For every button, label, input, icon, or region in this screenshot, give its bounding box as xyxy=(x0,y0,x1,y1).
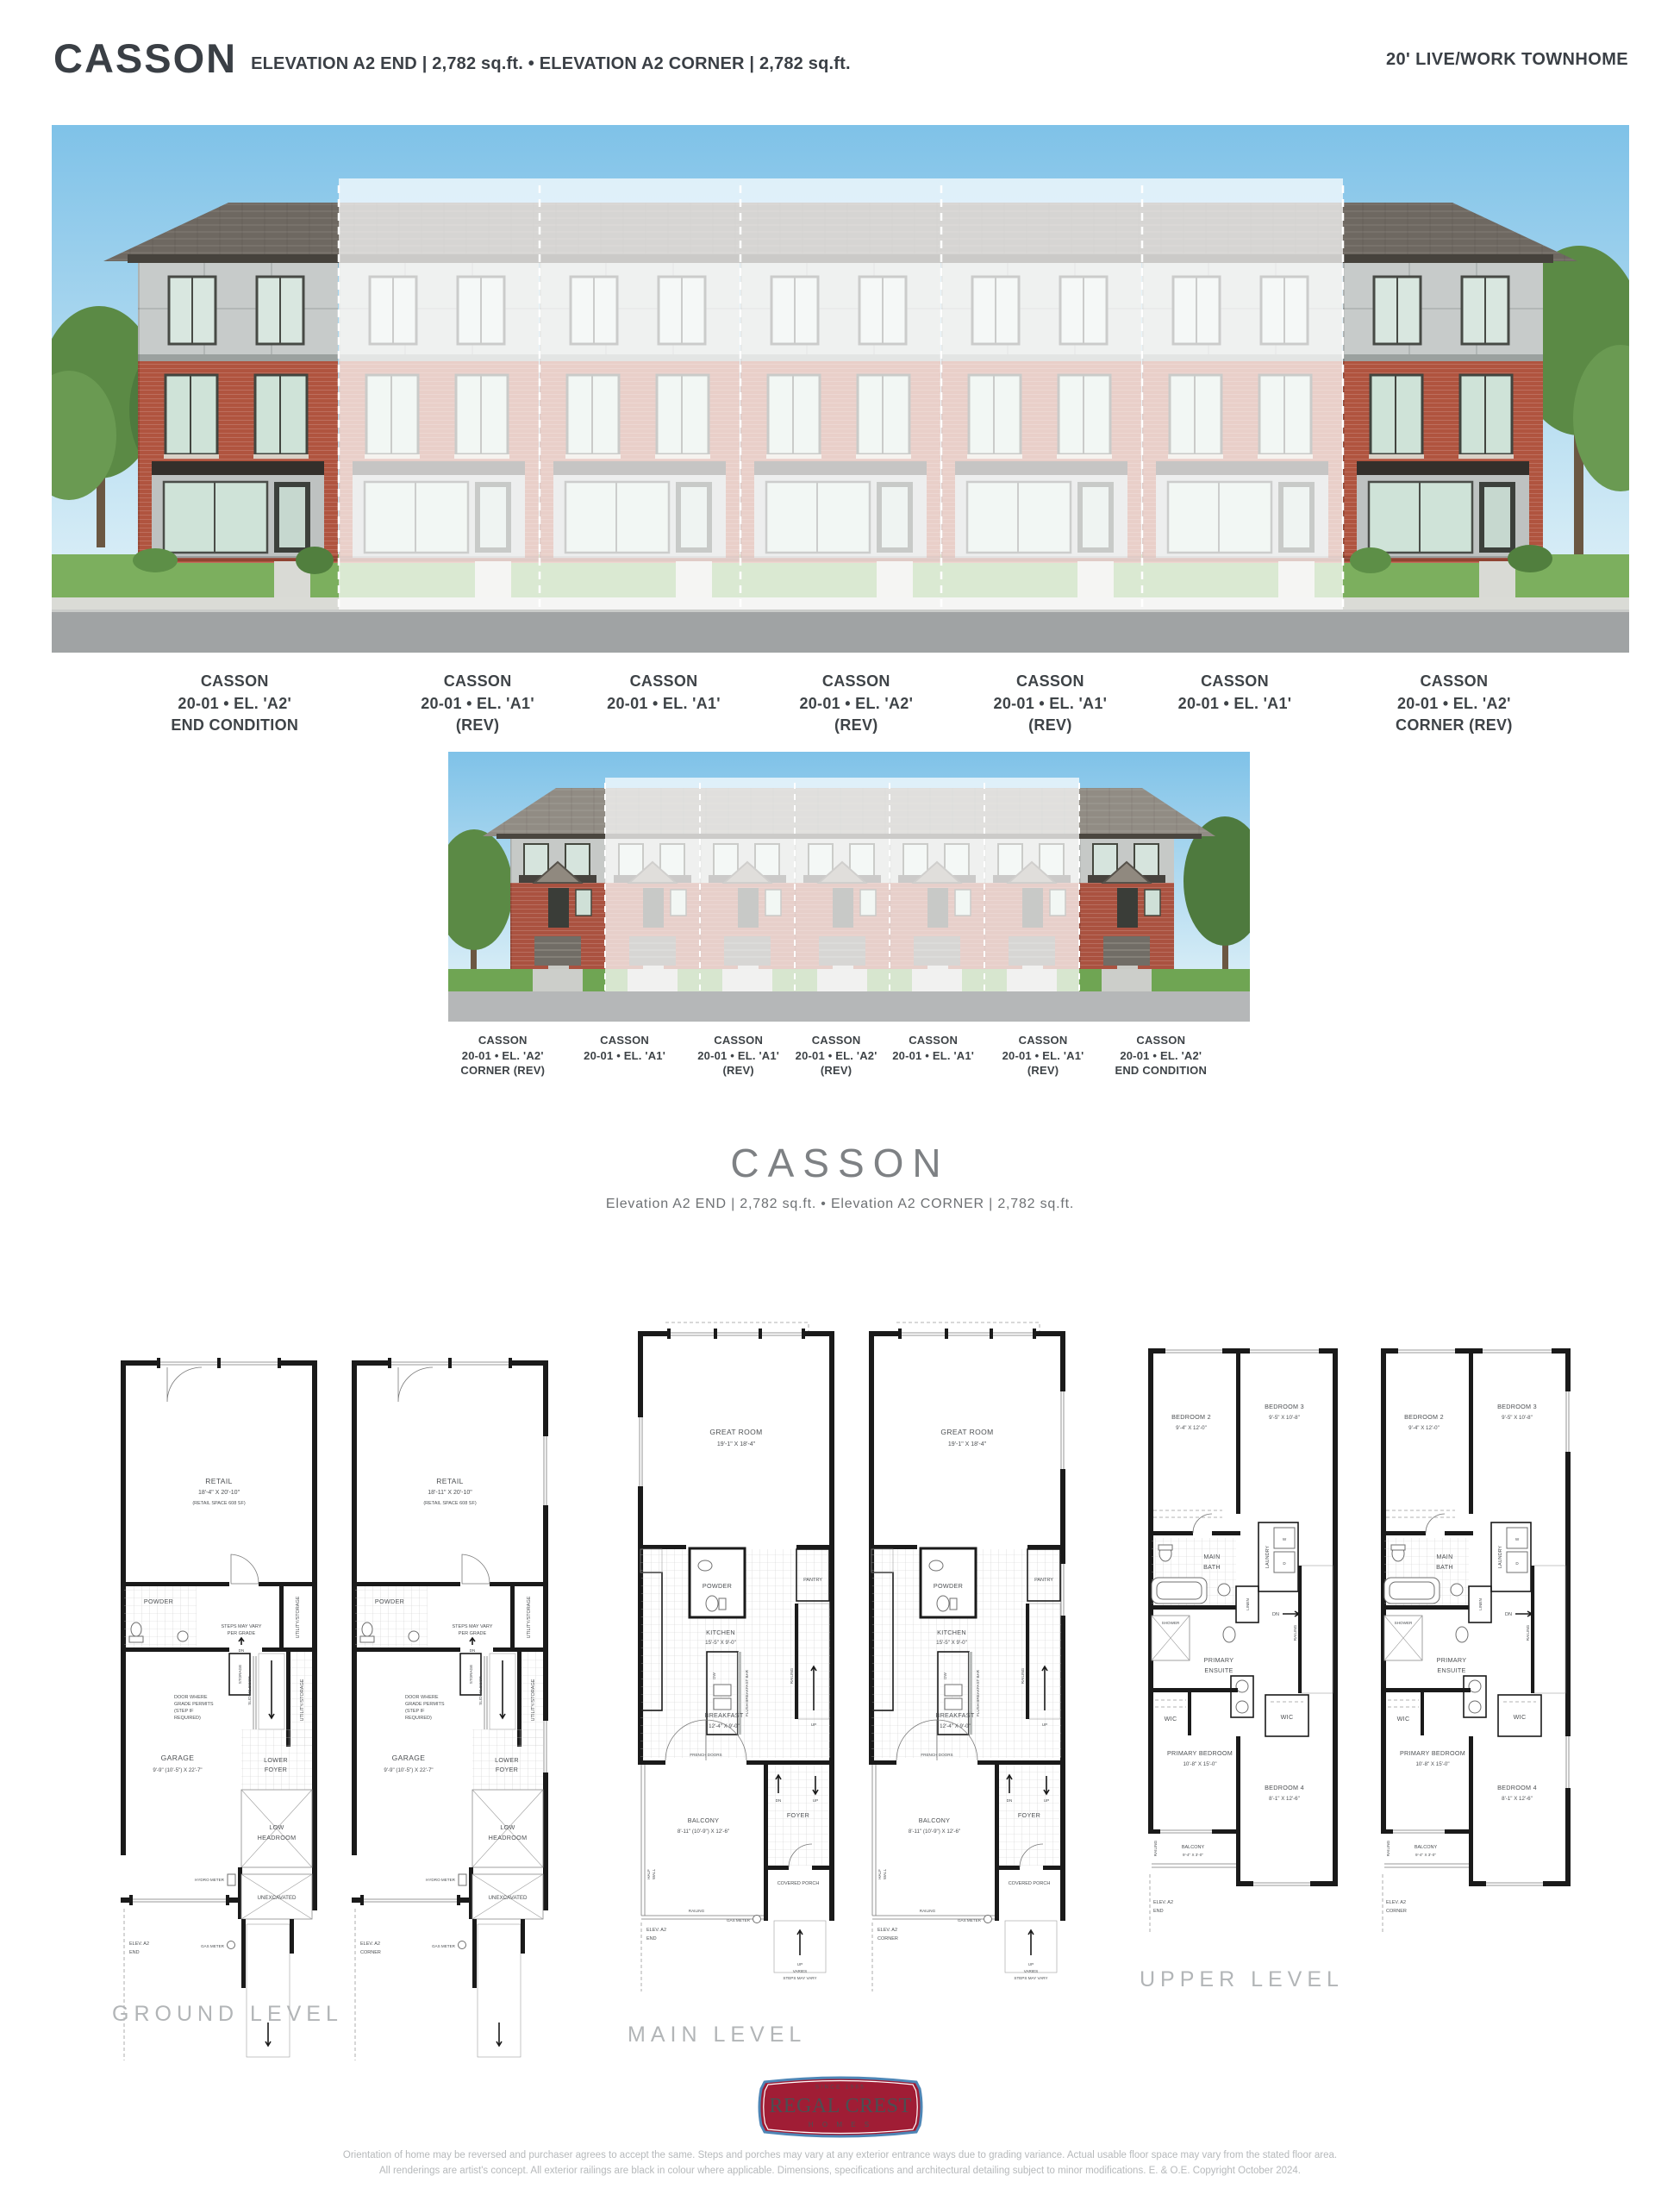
svg-text:STORAGE: STORAGE xyxy=(238,1665,242,1684)
svg-text:BALCONY: BALCONY xyxy=(919,1816,950,1824)
unit-label: CASSON 20-01 • EL. 'A1' (REV) xyxy=(994,671,1108,737)
svg-text:LOWER: LOWER xyxy=(495,1756,519,1764)
svg-text:SLIDING DOOR: SLIDING DOOR xyxy=(247,1676,252,1705)
svg-text:BATH: BATH xyxy=(1436,1563,1453,1571)
ground-plan-end: RETAIL 18'-4" X 20'-10" (RETAIL SPACE 60… xyxy=(110,1341,328,2066)
svg-text:GRADE PERMITS: GRADE PERMITS xyxy=(405,1702,445,1707)
upper-plan-end: BEDROOM 2 9'-4" X 12'-0" BEDROOM 3 9'-5"… xyxy=(1140,1331,1346,1966)
svg-text:8'-1" X 12'-6": 8'-1" X 12'-6" xyxy=(1502,1796,1533,1802)
main-level-label: MAIN LEVEL xyxy=(628,2023,806,2048)
svg-text:(STEP IF: (STEP IF xyxy=(174,1709,194,1714)
svg-text:HEADROOM: HEADROOM xyxy=(489,1834,528,1841)
svg-text:SHOWER: SHOWER xyxy=(1395,1621,1413,1625)
svg-text:UTILITY/STORAGE: UTILITY/STORAGE xyxy=(531,1679,536,1721)
svg-text:HYDRO METER: HYDRO METER xyxy=(195,1878,225,1882)
svg-text:RAILING: RAILING xyxy=(920,1909,936,1913)
disclaimer-line-1: Orientation of home may be reversed and … xyxy=(228,2148,1452,2164)
svg-text:ELEV. A2: ELEV. A2 xyxy=(129,1941,149,1947)
svg-text:PER GRADE: PER GRADE xyxy=(459,1631,487,1636)
unit-label: CASSON 20-01 • EL. 'A1' (REV) xyxy=(421,671,534,737)
ground-plan-corner: RETAIL 18'-11" X 20'-10" (RETAIL SPACE 6… xyxy=(341,1341,559,2066)
svg-text:GAS METER: GAS METER xyxy=(727,1918,751,1923)
svg-text:8'-1" X 12'-6": 8'-1" X 12'-6" xyxy=(1269,1796,1300,1802)
svg-text:STEPS MAY VARY: STEPS MAY VARY xyxy=(1014,1976,1047,1980)
page-title: CASSON xyxy=(53,38,237,78)
svg-text:W: W xyxy=(1283,1537,1287,1541)
svg-text:LOW: LOW xyxy=(269,1823,284,1831)
svg-text:UP: UP xyxy=(797,1962,803,1966)
svg-text:9'-4" X 12'-0": 9'-4" X 12'-0" xyxy=(1408,1425,1440,1431)
front-elevation-rendering xyxy=(52,125,1629,653)
bedroom3-label: BEDROOM 3 xyxy=(1265,1403,1304,1410)
svg-text:RAILING: RAILING xyxy=(790,1667,794,1684)
great-room-label: GREAT ROOM xyxy=(709,1428,762,1436)
svg-text:UP: UP xyxy=(1042,1722,1047,1727)
svg-text:STEPS MAY VARY: STEPS MAY VARY xyxy=(783,1976,816,1980)
svg-text:8'-11" (10'-9") X 12'-6": 8'-11" (10'-9") X 12'-6" xyxy=(678,1829,729,1835)
svg-text:POWDER: POWDER xyxy=(375,1597,404,1605)
svg-text:9'-4" X 3'-0": 9'-4" X 3'-0" xyxy=(1183,1853,1203,1857)
svg-text:UP: UP xyxy=(1028,1962,1034,1966)
garage-label: GARAGE xyxy=(161,1754,195,1762)
svg-text:DOOR WHERE: DOOR WHERE xyxy=(174,1695,208,1700)
elev-corner-label: CORNER xyxy=(360,1950,381,1955)
kitchen-label: KITCHEN xyxy=(706,1629,735,1636)
balcony-label: BALCONY xyxy=(688,1816,719,1824)
svg-text:9'-4" X 3'-0": 9'-4" X 3'-0" xyxy=(1415,1853,1436,1857)
svg-text:RAILING: RAILING xyxy=(1153,1840,1158,1856)
primary-bedroom-label: PRIMARY BEDROOM xyxy=(1167,1749,1233,1757)
regal-crest-badge: SINCE 1965 REGAL CREST H O M E S xyxy=(756,2071,925,2143)
svg-text:MAIN: MAIN xyxy=(1436,1553,1452,1560)
svg-text:UNEXCAVATED: UNEXCAVATED xyxy=(257,1895,297,1901)
model-subtitle: Elevation A2 END | 2,782 sq.ft. • Elevat… xyxy=(0,1197,1680,1212)
svg-text:VARIES: VARIES xyxy=(1024,1969,1039,1973)
svg-text:18'-11" X 20'-10": 18'-11" X 20'-10" xyxy=(428,1490,472,1496)
disclaimer-line-2: All renderings are artist's concept. All… xyxy=(228,2164,1452,2179)
svg-text:DN: DN xyxy=(239,1648,245,1653)
svg-text:9'-5" X 10'-8": 9'-5" X 10'-8" xyxy=(1269,1415,1300,1421)
svg-text:REQUIRED): REQUIRED) xyxy=(405,1716,432,1721)
primary-ensuite-label: PRIMARY xyxy=(1204,1656,1234,1664)
bedroom2-label: BEDROOM 2 xyxy=(1171,1413,1211,1421)
svg-text:ELEV. A2: ELEV. A2 xyxy=(1153,1900,1173,1905)
balcony-label: BALCONY xyxy=(1182,1845,1205,1850)
unit-label: CASSON 20-01 • EL. 'A1' (REV) xyxy=(697,1033,779,1078)
unit-label: CASSON 20-01 • EL. 'A2' END CONDITION xyxy=(1115,1033,1207,1078)
svg-text:ELEV. A2: ELEV. A2 xyxy=(1386,1900,1406,1905)
unit-label: CASSON 20-01 • EL. 'A1' xyxy=(584,1033,665,1063)
builder-logo: SINCE 1965 REGAL CREST H O M E S xyxy=(756,2071,925,2143)
main-plan-end: GREAT ROOM 19'-1" X 18'-4" POWDER PANTRY… xyxy=(628,1314,845,1995)
front-unit-labels: CASSON 20-01 • EL. 'A2' END CONDITION CA… xyxy=(52,671,1629,750)
unit-label: CASSON 20-01 • EL. 'A1' (REV) xyxy=(1002,1033,1084,1078)
svg-text:LINEN: LINEN xyxy=(1478,1598,1483,1610)
rear-elevation-art xyxy=(448,752,1250,1022)
svg-text:FRENCH DOORS: FRENCH DOORS xyxy=(921,1753,952,1757)
svg-text:LOW: LOW xyxy=(500,1823,515,1831)
svg-text:BALCONY: BALCONY xyxy=(1415,1845,1438,1850)
svg-text:9'-9" (10'-5") X 22'-7": 9'-9" (10'-5") X 22'-7" xyxy=(153,1767,202,1773)
logo-name: REGAL CREST xyxy=(769,2095,911,2117)
svg-text:HALF: HALF xyxy=(646,1869,651,1879)
svg-text:DOOR WHERE: DOOR WHERE xyxy=(405,1695,439,1700)
foyer-label: FOYER xyxy=(787,1811,809,1819)
svg-text:GARAGE: GARAGE xyxy=(392,1754,426,1762)
svg-text:FOYER: FOYER xyxy=(496,1766,518,1773)
svg-text:W: W xyxy=(1515,1537,1520,1541)
svg-text:8'-11" (10'-9") X 12'-6": 8'-11" (10'-9") X 12'-6" xyxy=(909,1829,960,1835)
model-title: CASSON xyxy=(0,1140,1680,1186)
svg-text:KITCHEN: KITCHEN xyxy=(937,1629,966,1636)
breakfast-label: BREAKFAST xyxy=(704,1711,743,1719)
svg-text:WIC: WIC xyxy=(1514,1713,1527,1721)
svg-text:BEDROOM 3: BEDROOM 3 xyxy=(1497,1403,1537,1410)
elev-end-label: END xyxy=(129,1950,140,1955)
unit-label: CASSON 20-01 • EL. 'A1' xyxy=(1178,671,1292,715)
svg-text:STEPS MAY VARY: STEPS MAY VARY xyxy=(453,1624,493,1629)
disclaimer: Orientation of home may be reversed and … xyxy=(228,2148,1452,2179)
svg-text:WIC: WIC xyxy=(1281,1713,1294,1721)
svg-text:PRIMARY: PRIMARY xyxy=(1437,1656,1467,1664)
svg-text:GAS METER: GAS METER xyxy=(432,1944,456,1948)
svg-text:FLUSH BREAKFAST BAR: FLUSH BREAKFAST BAR xyxy=(976,1669,980,1716)
svg-text:GAS METER: GAS METER xyxy=(958,1918,982,1923)
svg-text:9'-9" (10'-5") X 22'-7": 9'-9" (10'-5") X 22'-7" xyxy=(384,1767,433,1773)
svg-text:RAILING: RAILING xyxy=(1021,1667,1025,1684)
svg-text:UTILITY/STORAGE: UTILITY/STORAGE xyxy=(527,1596,532,1638)
svg-text:REQUIRED): REQUIRED) xyxy=(174,1716,201,1721)
svg-text:ELEV. A2: ELEV. A2 xyxy=(360,1941,380,1947)
header: CASSON ELEVATION A2 END | 2,782 sq.ft. •… xyxy=(53,38,851,78)
svg-text:GREAT ROOM: GREAT ROOM xyxy=(940,1428,993,1436)
svg-text:PRIMARY BEDROOM: PRIMARY BEDROOM xyxy=(1400,1749,1465,1757)
svg-text:DN: DN xyxy=(1505,1612,1512,1617)
svg-text:FRENCH DOORS: FRENCH DOORS xyxy=(690,1753,721,1757)
svg-text:ENSUITE: ENSUITE xyxy=(1204,1666,1233,1674)
svg-text:(STEP IF: (STEP IF xyxy=(405,1709,425,1714)
svg-text:PANTRY: PANTRY xyxy=(1034,1578,1053,1583)
svg-text:UP: UP xyxy=(813,1798,818,1803)
unit-label: CASSON 20-01 • EL. 'A2' (REV) xyxy=(799,671,913,737)
unit-label: CASSON 20-01 • EL. 'A1' xyxy=(607,671,721,715)
svg-text:19'-1" X 18'-4": 19'-1" X 18'-4" xyxy=(948,1441,987,1447)
main-bath-label: MAIN xyxy=(1203,1553,1220,1560)
covered-porch-label: COVERED PORCH xyxy=(778,1881,820,1886)
svg-text:ENSUITE: ENSUITE xyxy=(1437,1666,1465,1674)
bedroom4-label: BEDROOM 4 xyxy=(1265,1784,1304,1791)
svg-text:9'-5" X 10'-8": 9'-5" X 10'-8" xyxy=(1502,1415,1533,1421)
rear-elevation-rendering xyxy=(448,752,1250,1022)
elev-corner-label: CORNER xyxy=(877,1936,898,1941)
svg-text:WALL: WALL xyxy=(883,1868,887,1879)
svg-text:18'-4" X 20'-10": 18'-4" X 20'-10" xyxy=(198,1490,240,1496)
svg-text:STEPS MAY VARY: STEPS MAY VARY xyxy=(222,1624,262,1629)
svg-text:DN: DN xyxy=(1007,1798,1013,1803)
svg-text:(RETAIL SPACE 608 SF): (RETAIL SPACE 608 SF) xyxy=(423,1501,477,1506)
svg-text:POWDER: POWDER xyxy=(934,1582,963,1590)
elev-corner-label: CORNER xyxy=(1386,1909,1407,1914)
svg-text:ELEV. A2: ELEV. A2 xyxy=(646,1928,666,1933)
svg-text:(RETAIL SPACE 608 SF): (RETAIL SPACE 608 SF) xyxy=(192,1501,246,1506)
logo-homes: H O M E S xyxy=(808,2121,871,2129)
svg-text:FLUSH BREAKFAST BAR: FLUSH BREAKFAST BAR xyxy=(745,1669,749,1716)
svg-text:DW: DW xyxy=(712,1672,716,1679)
svg-text:GAS METER: GAS METER xyxy=(201,1944,225,1948)
svg-text:LAUNDRY: LAUNDRY xyxy=(1498,1546,1503,1569)
svg-text:RAILING: RAILING xyxy=(689,1909,705,1913)
svg-text:DN: DN xyxy=(776,1798,782,1803)
svg-text:VARIES: VARIES xyxy=(793,1969,808,1973)
svg-text:HALF: HALF xyxy=(877,1869,882,1879)
faded-units-overlay xyxy=(339,178,1343,610)
unit-label: CASSON 20-01 • EL. 'A2' END CONDITION xyxy=(171,671,298,737)
svg-text:COVERED PORCH: COVERED PORCH xyxy=(1009,1881,1051,1886)
svg-text:WALL: WALL xyxy=(652,1868,656,1879)
svg-text:RAILING: RAILING xyxy=(1386,1840,1390,1856)
svg-text:10'-8" X 15'-0": 10'-8" X 15'-0" xyxy=(1183,1761,1216,1767)
svg-text:HEADROOM: HEADROOM xyxy=(258,1834,297,1841)
svg-text:DW: DW xyxy=(943,1672,947,1679)
svg-text:FOYER: FOYER xyxy=(265,1766,287,1773)
svg-text:SLIDING DOOR: SLIDING DOOR xyxy=(478,1676,483,1705)
svg-text:LINEN: LINEN xyxy=(1246,1598,1250,1610)
svg-text:9'-4" X 12'-0": 9'-4" X 12'-0" xyxy=(1176,1425,1207,1431)
svg-text:RETAIL: RETAIL xyxy=(436,1477,464,1485)
svg-text:UTILITY/STORAGE: UTILITY/STORAGE xyxy=(296,1596,301,1638)
svg-text:WIC: WIC xyxy=(1397,1715,1410,1722)
svg-text:RAILING: RAILING xyxy=(1293,1624,1297,1641)
svg-text:GRADE PERMITS: GRADE PERMITS xyxy=(174,1702,214,1707)
wic-label: WIC xyxy=(1165,1715,1177,1722)
unit-label: CASSON 20-01 • EL. 'A2' (REV) xyxy=(796,1033,877,1078)
page-subtitle: ELEVATION A2 END | 2,782 sq.ft. • ELEVAT… xyxy=(251,54,851,78)
svg-text:PER GRADE: PER GRADE xyxy=(228,1631,256,1636)
svg-text:DN: DN xyxy=(470,1648,476,1653)
elev-end-label: END xyxy=(1153,1909,1164,1914)
unit-label: CASSON 20-01 • EL. 'A1' xyxy=(892,1033,974,1063)
upper-level-label: UPPER LEVEL xyxy=(1140,1967,1344,1992)
upper-plan-corner: BEDROOM 2 9'-4" X 12'-0" BEDROOM 3 9'-5"… xyxy=(1372,1331,1579,1966)
svg-text:UP: UP xyxy=(811,1722,816,1727)
svg-text:ELEV. A2: ELEV. A2 xyxy=(877,1928,897,1933)
svg-text:BEDROOM 4: BEDROOM 4 xyxy=(1497,1784,1537,1791)
svg-text:19'-1" X 18'-4": 19'-1" X 18'-4" xyxy=(717,1441,756,1447)
svg-text:PANTRY: PANTRY xyxy=(803,1578,822,1583)
svg-text:BREAKFAST: BREAKFAST xyxy=(935,1711,974,1719)
svg-text:HYDRO METER: HYDRO METER xyxy=(426,1878,456,1882)
unit-label: CASSON 20-01 • EL. 'A2' CORNER (REV) xyxy=(1396,671,1513,737)
svg-text:BEDROOM 2: BEDROOM 2 xyxy=(1404,1413,1444,1421)
road xyxy=(52,612,1629,653)
powder-label: POWDER xyxy=(144,1597,173,1605)
svg-text:15'-5" X 9'-0": 15'-5" X 9'-0" xyxy=(705,1640,736,1646)
brochure-page: CASSON ELEVATION A2 END | 2,782 sq.ft. •… xyxy=(0,0,1680,2207)
ground-level-label: GROUND LEVEL xyxy=(112,2002,343,2027)
svg-text:UTILITY/STORAGE: UTILITY/STORAGE xyxy=(300,1679,305,1721)
logo-since: SINCE 1965 xyxy=(815,2085,865,2091)
faded-units-overlay xyxy=(605,778,1079,991)
svg-text:LOWER: LOWER xyxy=(264,1756,288,1764)
front-elevation-art xyxy=(52,125,1629,653)
townhome-type-label: 20' LIVE/WORK TOWNHOME xyxy=(1386,50,1628,70)
svg-text:FOYER: FOYER xyxy=(1018,1811,1040,1819)
rear-unit-labels: CASSON 20-01 • EL. 'A2' CORNER (REV) CAS… xyxy=(448,1033,1250,1091)
svg-text:STORAGE: STORAGE xyxy=(469,1665,473,1684)
unit-label: CASSON 20-01 • EL. 'A2' CORNER (REV) xyxy=(460,1033,545,1078)
svg-text:SHOWER: SHOWER xyxy=(1162,1621,1180,1625)
retail-label: RETAIL xyxy=(205,1477,233,1485)
main-plan-corner: GREAT ROOM 19'-1" X 18'-4" POWDER PANTRY… xyxy=(859,1314,1076,1995)
svg-text:DN: DN xyxy=(1272,1612,1279,1617)
laundry-label: LAUNDRY xyxy=(1265,1546,1271,1569)
svg-text:10'-8" X 15'-0": 10'-8" X 15'-0" xyxy=(1415,1761,1449,1767)
svg-text:15'-5" X 9'-0": 15'-5" X 9'-0" xyxy=(936,1640,967,1646)
powder-label: POWDER xyxy=(703,1582,732,1590)
svg-text:BATH: BATH xyxy=(1203,1563,1221,1571)
road xyxy=(448,991,1250,1022)
svg-text:RAILING: RAILING xyxy=(1526,1624,1530,1641)
svg-text:UP: UP xyxy=(1044,1798,1049,1803)
elev-end-label: END xyxy=(646,1936,657,1941)
svg-text:UNEXCAVATED: UNEXCAVATED xyxy=(488,1895,528,1901)
